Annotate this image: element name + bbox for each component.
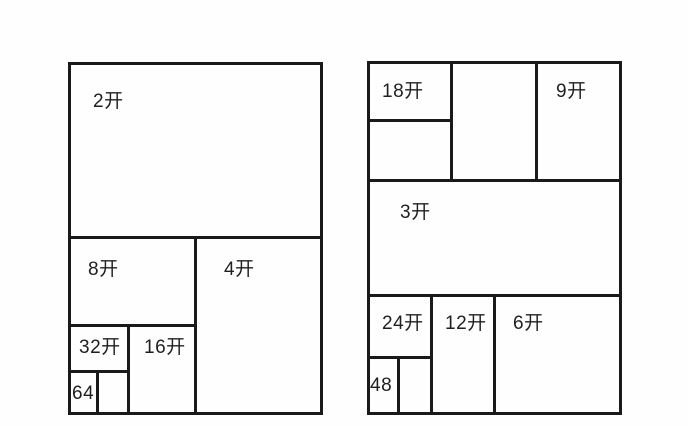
paper-size-fold-diagrams: 2开8开4开32开16开64 18开9开3开24开12开6开48 [0,0,688,426]
region-2kai-label: 2开 [93,92,124,111]
region-9kai-label: 9开 [556,82,587,101]
left-sheet-diagram: 2开8开4开32开16开64 [68,62,323,415]
region-48-label: 48 [370,376,392,395]
left-sheet-fold-line-h2 [68,370,130,373]
left-sheet-fold-line-h1 [68,324,197,327]
region-32kai-label: 32开 [79,338,121,357]
region-12kai-label: 12开 [445,314,487,333]
region-16kai-label: 16开 [144,338,186,357]
right-sheet-diagram: 18开9开3开24开12开6开48 [367,61,622,415]
left-sheet-fold-line-v2 [96,370,99,415]
region-24kai-label: 24开 [382,314,424,333]
region-3kai-label: 3开 [400,203,431,222]
region-6kai-label: 6开 [513,314,544,333]
right-sheet-fold-line-h1 [367,179,622,182]
right-sheet-fold-line-v0 [450,61,453,182]
region-4kai-label: 4开 [224,260,255,279]
right-sheet-fold-line-v2 [430,294,433,415]
right-sheet-fold-line-v3 [493,294,496,415]
right-sheet-fold-line-v1 [535,61,538,182]
left-sheet-fold-line-v1 [127,324,130,415]
right-sheet-fold-line-h3 [367,356,433,359]
right-sheet-fold-line-v4 [397,356,400,415]
region-64-label: 64 [72,384,94,403]
left-sheet-fold-line-v0 [194,236,197,415]
region-8kai-label: 8开 [88,260,119,279]
right-sheet-fold-line-h0 [367,119,453,122]
region-18kai-label: 18开 [382,82,424,101]
